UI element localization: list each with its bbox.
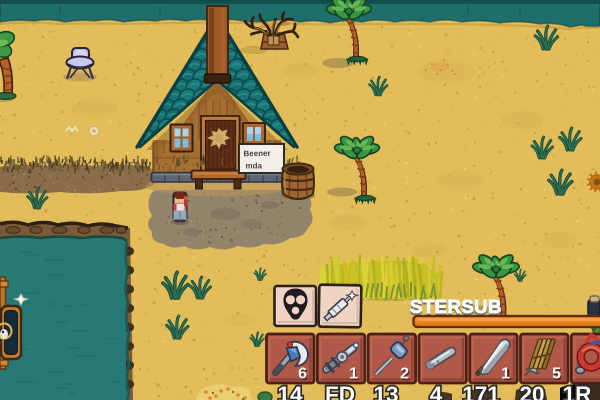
svg-text:FD: FD bbox=[325, 382, 355, 400]
svg-text:STERSUB: STERSUB bbox=[410, 296, 502, 317]
svg-text:1: 1 bbox=[349, 366, 358, 383]
svg-text:5: 5 bbox=[552, 366, 561, 383]
svg-text:171: 171 bbox=[462, 382, 500, 400]
svg-text:20: 20 bbox=[519, 382, 544, 400]
svg-text:14: 14 bbox=[277, 382, 303, 400]
svg-text:4: 4 bbox=[430, 382, 443, 400]
svg-text:13: 13 bbox=[373, 382, 398, 400]
svg-text:mda: mda bbox=[246, 162, 263, 171]
svg-text:1R: 1R bbox=[563, 382, 592, 400]
svg-text:Beener: Beener bbox=[243, 149, 270, 158]
svg-text:6: 6 bbox=[298, 366, 307, 383]
svg-text:1: 1 bbox=[501, 366, 510, 383]
svg-text:2: 2 bbox=[400, 366, 409, 383]
